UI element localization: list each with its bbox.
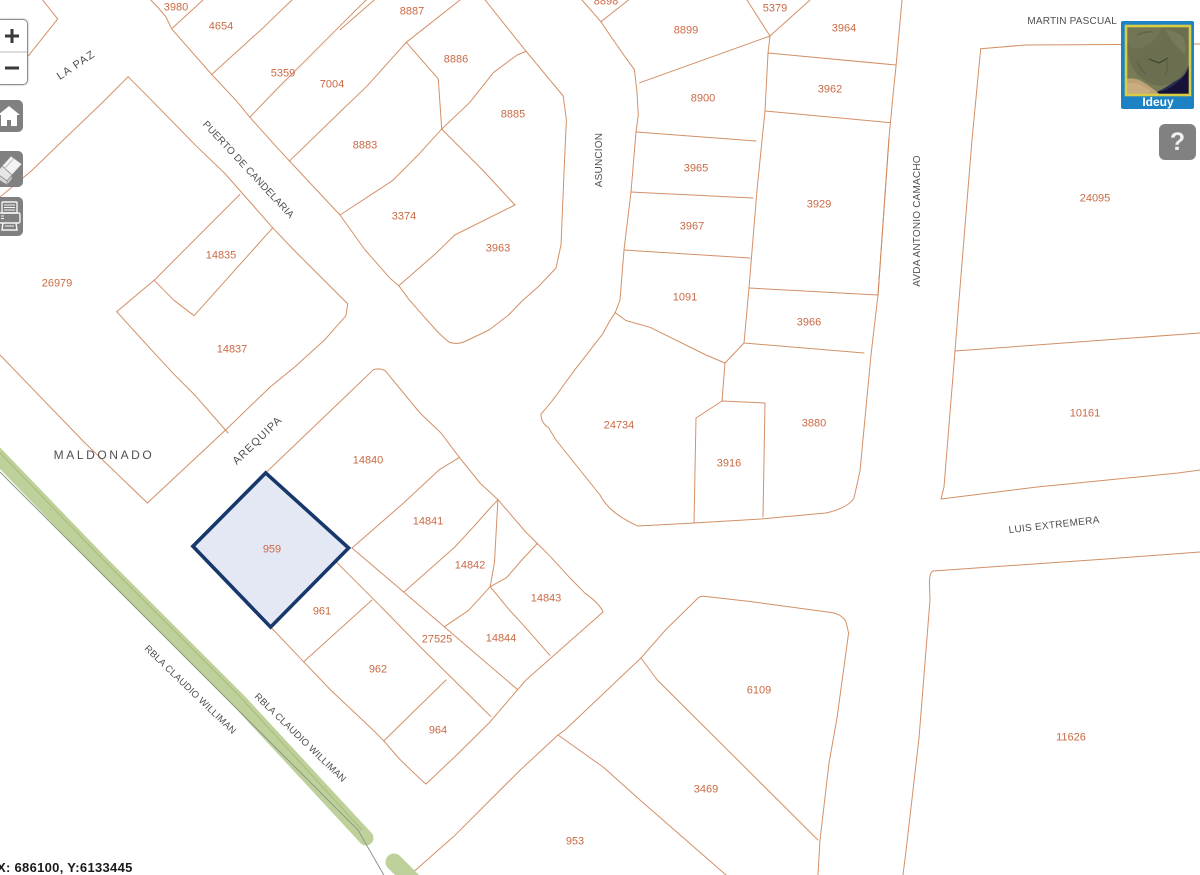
svg-text:14840: 14840 — [353, 455, 384, 467]
svg-text:26979: 26979 — [42, 278, 73, 290]
svg-text:964: 964 — [429, 725, 447, 737]
svg-text:3963: 3963 — [486, 243, 510, 255]
svg-text:953: 953 — [566, 836, 584, 848]
svg-text:24734: 24734 — [604, 420, 635, 432]
svg-text:27525: 27525 — [422, 634, 453, 646]
svg-text:14844: 14844 — [486, 633, 517, 645]
svg-text:8887: 8887 — [400, 6, 424, 18]
svg-text:3966: 3966 — [797, 317, 821, 329]
svg-text:14841: 14841 — [413, 516, 444, 528]
svg-text:24095: 24095 — [1080, 193, 1111, 205]
svg-text:4654: 4654 — [209, 21, 233, 33]
svg-text:3929: 3929 — [807, 199, 831, 211]
svg-text:3967: 3967 — [680, 221, 704, 233]
svg-text:8900: 8900 — [691, 93, 715, 105]
svg-text:3980: 3980 — [164, 2, 188, 14]
svg-text:961: 961 — [313, 606, 331, 618]
svg-text:1091: 1091 — [673, 292, 697, 304]
svg-text:962: 962 — [369, 664, 387, 676]
svg-text:14843: 14843 — [531, 593, 562, 605]
svg-text:8885: 8885 — [501, 109, 525, 121]
svg-text:3965: 3965 — [684, 163, 708, 175]
svg-text:8886: 8886 — [444, 54, 468, 66]
svg-text:10161: 10161 — [1070, 408, 1101, 420]
svg-text:14842: 14842 — [455, 560, 486, 572]
svg-text:3469: 3469 — [694, 784, 718, 796]
svg-text:PUERTO DE CANDELARIA: PUERTO DE CANDELARIA — [200, 119, 296, 221]
svg-text:14835: 14835 — [206, 250, 237, 262]
svg-text:3962: 3962 — [818, 84, 842, 96]
svg-text:8899: 8899 — [674, 25, 698, 37]
svg-text:8898: 8898 — [594, 0, 618, 8]
svg-text:3880: 3880 — [802, 418, 826, 430]
svg-text:959: 959 — [263, 544, 281, 556]
svg-text:8883: 8883 — [353, 140, 377, 152]
svg-text:LA PAZ: LA PAZ — [55, 48, 98, 82]
svg-text:AVDA ANTONIO CAMACHO: AVDA ANTONIO CAMACHO — [912, 155, 923, 286]
svg-text:3374: 3374 — [392, 211, 416, 223]
svg-text:14837: 14837 — [217, 344, 248, 356]
svg-text:MALDONADO: MALDONADO — [54, 448, 155, 462]
svg-text:5359: 5359 — [271, 68, 295, 80]
svg-text:7004: 7004 — [320, 79, 344, 91]
svg-text:3916: 3916 — [717, 458, 741, 470]
svg-text:6109: 6109 — [747, 685, 771, 697]
svg-text:ASUNCION: ASUNCION — [594, 133, 605, 187]
svg-text:5379: 5379 — [763, 3, 787, 15]
svg-text:Ideuy: Ideuy — [1142, 95, 1174, 109]
svg-text:AREQUIPA: AREQUIPA — [230, 414, 284, 467]
svg-text:LUIS EXTREMERA: LUIS EXTREMERA — [1008, 515, 1100, 536]
svg-text:11626: 11626 — [1056, 732, 1086, 744]
svg-text:MARTIN PASCUAL: MARTIN PASCUAL — [1027, 16, 1117, 27]
svg-text:3964: 3964 — [832, 23, 856, 35]
